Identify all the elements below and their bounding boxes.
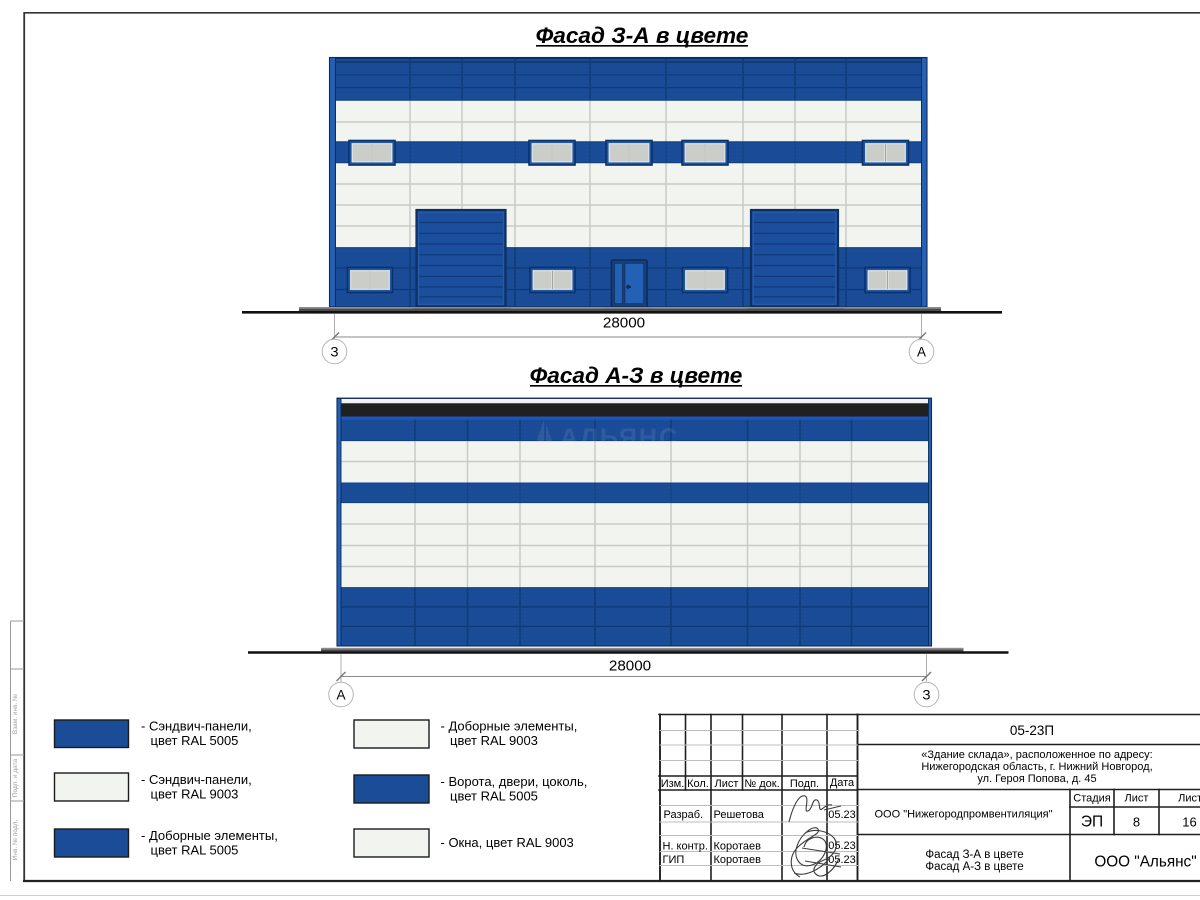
svg-text:- Окна, цвет RAL 9003: - Окна, цвет RAL 9003 (441, 835, 574, 850)
svg-text:- Доборные элементы,: - Доборные элементы, (441, 719, 578, 734)
svg-text:АЛЬЯНС: АЛЬЯНС (560, 424, 679, 452)
svg-text:05.23: 05.23 (828, 809, 856, 821)
svg-text:А: А (917, 345, 926, 360)
svg-text:- Ворота, двери, цоколь,: - Ворота, двери, цоколь, (441, 774, 588, 789)
svg-text:Инв. № подл.: Инв. № подл. (12, 820, 19, 861)
svg-text:28000: 28000 (603, 315, 645, 332)
svg-text:цвет RAL 5005: цвет RAL 5005 (151, 842, 239, 857)
svg-text:ООО "Альянс": ООО "Альянс" (1094, 854, 1196, 871)
svg-text:ЭП: ЭП (1081, 814, 1103, 831)
svg-text:Разраб.: Разраб. (664, 809, 704, 821)
svg-text:цвет RAL 5005: цвет RAL 5005 (450, 788, 538, 803)
svg-text:Изм.: Изм. (661, 778, 685, 790)
svg-text:Взам. инв. №: Взам. инв. № (12, 694, 19, 734)
svg-text:Лист: Лист (715, 778, 739, 790)
svg-text:Лист: Лист (1125, 793, 1149, 805)
svg-text:«Здание склада», расположенное: «Здание склада», расположенное по адресу… (921, 749, 1152, 761)
svg-text:З: З (922, 688, 930, 703)
svg-text:Дата: Дата (830, 777, 855, 789)
svg-text:28000: 28000 (609, 658, 651, 675)
svg-text:- Сэндвич-панели,: - Сэндвич-панели, (141, 772, 252, 787)
svg-text:Н. контр.: Н. контр. (663, 841, 708, 853)
svg-text:05-23П: 05-23П (1010, 723, 1054, 738)
svg-text:- Сэндвич-панели,: - Сэндвич-панели, (141, 719, 252, 734)
svg-text:16: 16 (1182, 815, 1196, 830)
svg-text:ООО "Нижегородпромвентиляция": ООО "Нижегородпромвентиляция" (874, 809, 1052, 821)
svg-text:З: З (330, 345, 338, 360)
svg-text:ГИП: ГИП (663, 854, 685, 866)
svg-text:05.23: 05.23 (828, 840, 856, 852)
svg-text:- Доборные элементы,: - Доборные элементы, (141, 828, 278, 843)
svg-text:ул. Героя Попова, д. 45: ул. Героя Попова, д. 45 (977, 773, 1096, 785)
svg-text:Фасад З-А в цвете: Фасад З-А в цвете (925, 849, 1023, 861)
svg-text:Подп.: Подп. (790, 778, 819, 790)
svg-text:цвет RAL 5005: цвет RAL 5005 (151, 733, 239, 748)
svg-text:Подп. и дата: Подп. и дата (12, 758, 19, 797)
svg-text:цвет RAL 9003: цвет RAL 9003 (450, 733, 538, 748)
svg-text:цвет RAL 9003: цвет RAL 9003 (151, 786, 239, 801)
svg-text:Решетова: Решетова (714, 809, 765, 821)
svg-text:Фасад А-З в цвете: Фасад А-З в цвете (925, 861, 1023, 873)
svg-text:Фасад А-З в цвете: Фасад А-З в цвете (530, 363, 743, 388)
svg-text:Коротаев: Коротаев (714, 841, 762, 853)
svg-text:Нижегородская область, г. Нижн: Нижегородская область, г. Нижний Новгоро… (921, 761, 1152, 773)
svg-text:8: 8 (1133, 815, 1140, 830)
svg-text:Кол.: Кол. (687, 778, 709, 790)
svg-text:№ док.: № док. (744, 778, 779, 790)
svg-text:05.23: 05.23 (828, 854, 856, 866)
svg-text:Листов: Листов (1178, 793, 1200, 805)
svg-text:Фасад З-А в цвете: Фасад З-А в цвете (536, 23, 749, 48)
svg-text:Стадия: Стадия (1073, 793, 1111, 805)
svg-text:А: А (336, 688, 345, 703)
svg-text:Коротаев: Коротаев (714, 854, 762, 866)
